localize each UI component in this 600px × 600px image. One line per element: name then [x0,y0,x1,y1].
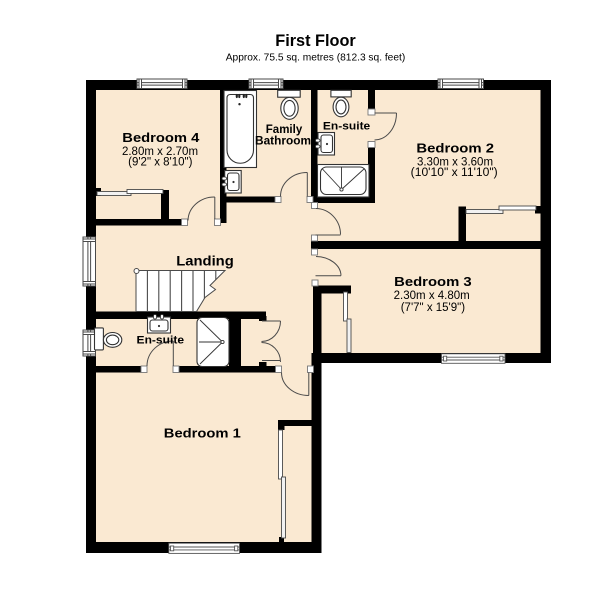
svg-text:(7'7" x 15'9"): (7'7" x 15'9") [401,302,466,314]
svg-text:First Floor: First Floor [275,31,356,50]
svg-text:Bedroom 1: Bedroom 1 [164,425,241,440]
svg-text:2.30m x 4.80m: 2.30m x 4.80m [394,290,470,302]
svg-text:Bedroom 2: Bedroom 2 [416,140,494,155]
svg-text:Landing: Landing [176,254,234,270]
svg-text:En-suite: En-suite [323,121,370,133]
svg-text:Approx. 75.5 sq. metres (812.3: Approx. 75.5 sq. metres (812.3 sq. feet) [226,53,406,64]
svg-text:(10'10" x 11'10"): (10'10" x 11'10") [411,167,498,179]
svg-text:Family: Family [266,124,303,136]
svg-text:Bedroom 4: Bedroom 4 [122,130,200,145]
svg-text:Bedroom 3: Bedroom 3 [394,274,472,289]
svg-text:En-suite: En-suite [137,335,185,347]
svg-text:Bathroom: Bathroom [255,135,311,147]
svg-text:(9'2" x 8'10"): (9'2" x 8'10") [128,156,193,168]
